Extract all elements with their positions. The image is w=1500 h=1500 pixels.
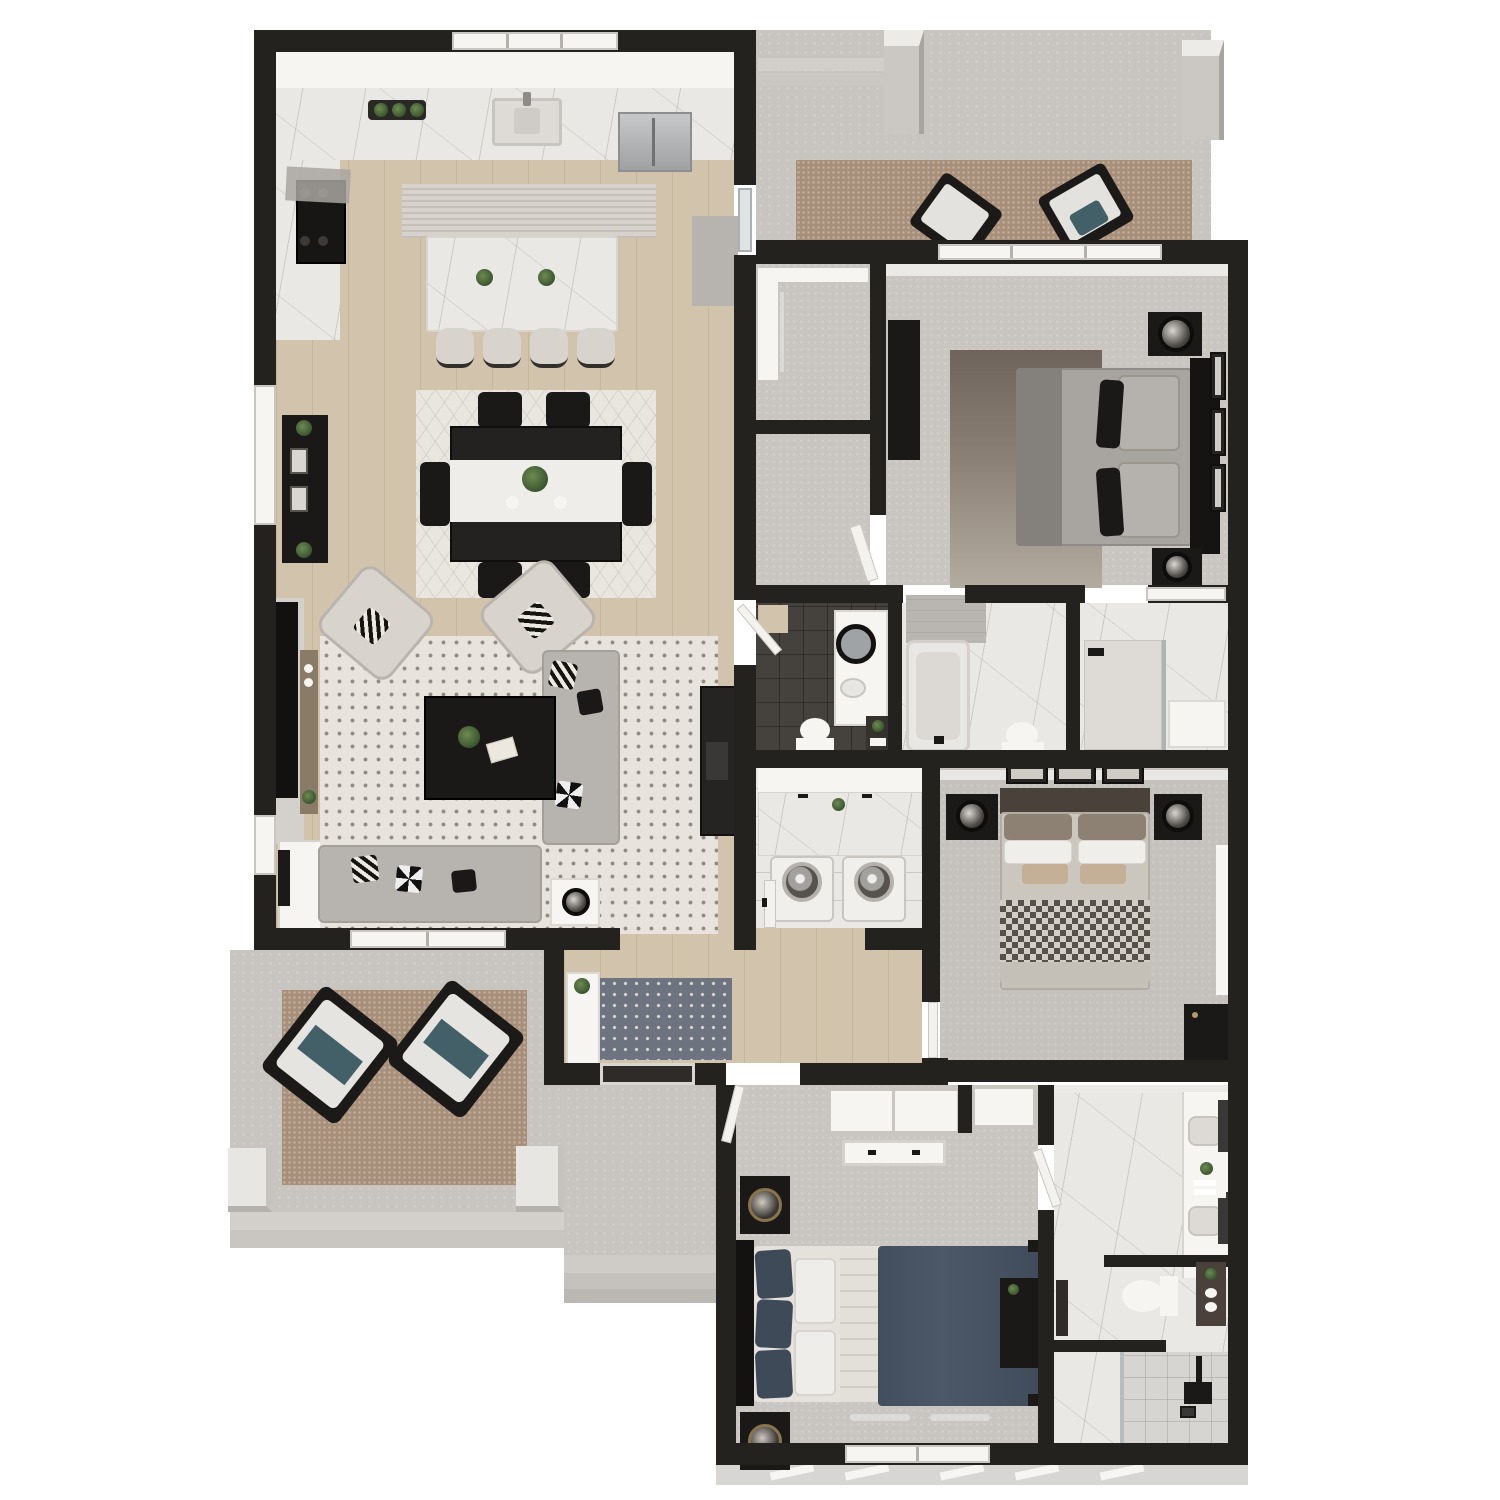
vanity-sink: [1188, 1116, 1222, 1146]
shower-partition-wall: [1054, 1340, 1166, 1352]
entry-plant: [574, 978, 590, 994]
wall-art-frame: [1210, 408, 1226, 456]
tp-roll: [1205, 1288, 1217, 1298]
wall: [734, 255, 756, 600]
island-plant: [476, 269, 493, 286]
wall: [756, 585, 903, 603]
master-pillow-brown: [1078, 814, 1146, 840]
cabinet-handle: [798, 794, 808, 798]
cabinet-handle: [862, 794, 872, 798]
candle-icon: [304, 664, 313, 673]
bed3-navy-pillow: [755, 1299, 793, 1349]
floor-plan-rendering: [0, 0, 1500, 1500]
door-handle: [762, 898, 767, 907]
porch-step: [230, 1212, 564, 1230]
slider-handle: [912, 1150, 920, 1155]
porch-column: [516, 1146, 564, 1212]
vanity-mirror: [1218, 1100, 1228, 1152]
shower-drain: [1180, 1406, 1196, 1418]
bedroom3-closet-doors: [972, 1086, 1036, 1128]
patio-door-mat: [692, 216, 738, 306]
sofa-pillow: [395, 865, 424, 894]
wall: [888, 603, 902, 750]
wall: [1066, 603, 1080, 750]
range-hood: [285, 166, 351, 203]
shower-glass: [1120, 1352, 1124, 1443]
mantel-plant: [302, 790, 316, 804]
porch-step: [230, 1230, 564, 1248]
wall: [1228, 240, 1248, 1465]
shelf-plant: [1205, 1268, 1217, 1280]
window-mullion: [916, 1447, 919, 1461]
vanity-sink: [1188, 1206, 1222, 1236]
wall: [756, 750, 1228, 768]
carpet-highlight: [850, 1414, 910, 1421]
master-pillow-brown: [1004, 814, 1072, 840]
leaning-art-frame: [278, 850, 290, 906]
closet-tower: [758, 268, 778, 380]
shower-arm: [1196, 1356, 1202, 1384]
window-mullion: [426, 932, 429, 946]
bed3-navy-pillow: [755, 1349, 793, 1399]
patio-column: [884, 30, 924, 134]
laundry-upper-cabinets: [758, 768, 922, 794]
bed2-folded-duvet: [1016, 368, 1062, 546]
dining-chair: [622, 462, 652, 526]
console-frame: [290, 448, 308, 474]
fireplace-detail: [706, 742, 728, 780]
counter-stool: [577, 328, 615, 368]
shower-glass: [1162, 640, 1166, 750]
bed2-lamp: [1162, 552, 1192, 582]
toilet-bowl: [1122, 1280, 1164, 1312]
master-pillow-tan: [1022, 864, 1068, 884]
counter-stool: [483, 328, 521, 368]
herb-plant: [374, 103, 388, 117]
window-mullion: [1084, 246, 1087, 258]
table-lamp: [562, 888, 590, 916]
bed3-white-pillow: [794, 1258, 836, 1324]
island-plant: [538, 269, 555, 286]
refrigerator: [618, 112, 692, 172]
sofa-pillow: [451, 869, 477, 893]
console-plant: [296, 542, 312, 558]
closet-rod: [780, 292, 784, 372]
dining-chair: [546, 392, 590, 428]
carpet-highlight: [930, 1414, 990, 1421]
wall: [695, 1063, 726, 1085]
shower-floor: [1084, 640, 1162, 750]
sofa-pillow: [350, 854, 379, 883]
wall: [1038, 1210, 1054, 1443]
wall: [870, 262, 886, 515]
burner-icon: [300, 236, 310, 246]
wall-art-frame: [1210, 352, 1226, 400]
wall: [922, 1058, 948, 1085]
shower-head-icon: [1184, 1382, 1212, 1404]
bed2-accent-pillow: [1096, 379, 1125, 449]
master-pillow-white: [1004, 840, 1072, 864]
walkway-step: [564, 1289, 716, 1303]
wall: [1038, 1085, 1054, 1145]
niche-plant: [1200, 1162, 1213, 1175]
sectional-sofa: [318, 845, 542, 923]
sofa-pillow: [576, 688, 604, 716]
kitchen-window: [452, 32, 618, 50]
herb-plant: [410, 103, 424, 117]
round-mirror: [836, 624, 876, 664]
front-door: [600, 1063, 695, 1085]
shelf-plant: [872, 720, 884, 732]
kitchen-upper-cabinets: [276, 52, 734, 90]
wall: [756, 420, 870, 434]
sofa-pillow: [548, 660, 579, 691]
dryer-door: [854, 862, 894, 902]
dining-chair: [420, 462, 450, 526]
closet-slider-panel: [842, 1140, 946, 1166]
bedroom2-window: [938, 244, 1162, 260]
towel-bar: [1056, 1280, 1068, 1336]
centerpiece-plant: [522, 466, 548, 492]
burner-icon: [318, 236, 328, 246]
tub-basin: [916, 652, 960, 740]
wall-art-frame: [1210, 464, 1226, 512]
wall: [948, 1060, 1228, 1082]
console-frame: [290, 486, 308, 512]
bed2-pillow: [1118, 375, 1180, 451]
bed3-lamp: [748, 1188, 782, 1222]
fridge-handle: [652, 118, 655, 166]
tv-screen: [276, 602, 298, 798]
master-lamp: [1162, 800, 1194, 832]
master-pillow-tan: [1080, 864, 1126, 884]
master-headboard: [1000, 788, 1150, 814]
toilet-tank: [1160, 1276, 1178, 1316]
master-foot-roll: [1000, 962, 1150, 988]
wall: [734, 665, 756, 950]
laundry-plant: [832, 798, 845, 811]
counter-stool: [436, 328, 474, 368]
wall: [544, 1063, 600, 1085]
window-mullion: [560, 34, 563, 48]
walkway-step: [564, 1255, 716, 1273]
shower-head-icon: [1088, 648, 1104, 656]
shower-floor: [1124, 1352, 1228, 1443]
bed2-accent-pillow: [1096, 467, 1125, 537]
bed2-pillow: [1118, 462, 1180, 538]
master-door-frame: [1216, 845, 1228, 995]
bedroom3-dresser: [1000, 1278, 1038, 1368]
dresser-decor: [1192, 1012, 1198, 1018]
patio-step: [758, 58, 896, 71]
slider-handle: [868, 1150, 876, 1155]
left-wall-window: [254, 385, 276, 525]
niche-towels: [1194, 1189, 1216, 1195]
master-checker-throw: [1000, 900, 1150, 964]
kitchen-runner-rug: [402, 184, 656, 238]
toilet-tank: [796, 738, 834, 750]
patio-slider-door: [738, 188, 752, 252]
sofa-pillow: [554, 780, 583, 809]
master-dresser: [1184, 1004, 1228, 1060]
patio-step: [758, 73, 904, 86]
patio-column: [1182, 40, 1224, 140]
wall: [865, 928, 922, 950]
wall: [965, 585, 1085, 603]
faucet-icon: [523, 92, 531, 106]
washer-door: [782, 862, 822, 902]
wall: [922, 768, 940, 1002]
table-bowl: [506, 496, 519, 509]
bed3-sheet-folds: [840, 1248, 880, 1402]
wall-face: [886, 264, 1228, 276]
vessel-sink: [840, 678, 866, 698]
console-plant: [296, 420, 312, 436]
bed3-headboard: [734, 1240, 754, 1406]
shower-room-window: [1146, 587, 1226, 601]
candle-icon: [304, 678, 313, 687]
niche-towels: [1194, 1180, 1216, 1186]
tp-roll: [1205, 1302, 1217, 1312]
counter-stool: [530, 328, 568, 368]
shower-bench: [1168, 700, 1226, 748]
sink-basin: [514, 108, 540, 134]
porch-column: [228, 1148, 272, 1212]
master-lamp: [956, 800, 988, 832]
door-leaf: [928, 1002, 938, 1058]
walkway-step: [564, 1273, 716, 1289]
bedroom2-dresser: [888, 320, 920, 460]
closet-door-split: [892, 1090, 895, 1132]
bed3-navy-pillow: [754, 1249, 793, 1299]
wall: [734, 30, 756, 185]
herb-plant: [392, 103, 406, 117]
shelf-towels: [870, 738, 886, 746]
bed2-lamp: [1158, 316, 1194, 352]
bed3-white-pillow: [794, 1330, 836, 1396]
coffee-table-plant: [458, 726, 480, 748]
dresser-plant: [1008, 1284, 1019, 1295]
vanity-mirror: [1218, 1192, 1228, 1244]
kitchen-island: [426, 236, 618, 332]
table-bowl: [554, 496, 567, 509]
window-mullion: [506, 34, 509, 48]
dining-chair: [478, 392, 522, 428]
master-pillow-white: [1078, 840, 1146, 864]
window-mullion: [1010, 246, 1013, 258]
front-walkway: [564, 1085, 716, 1255]
tub-faucet: [934, 736, 944, 744]
entry-rug: [598, 978, 732, 1060]
wall: [958, 1085, 972, 1133]
left-wall-window: [254, 815, 276, 875]
